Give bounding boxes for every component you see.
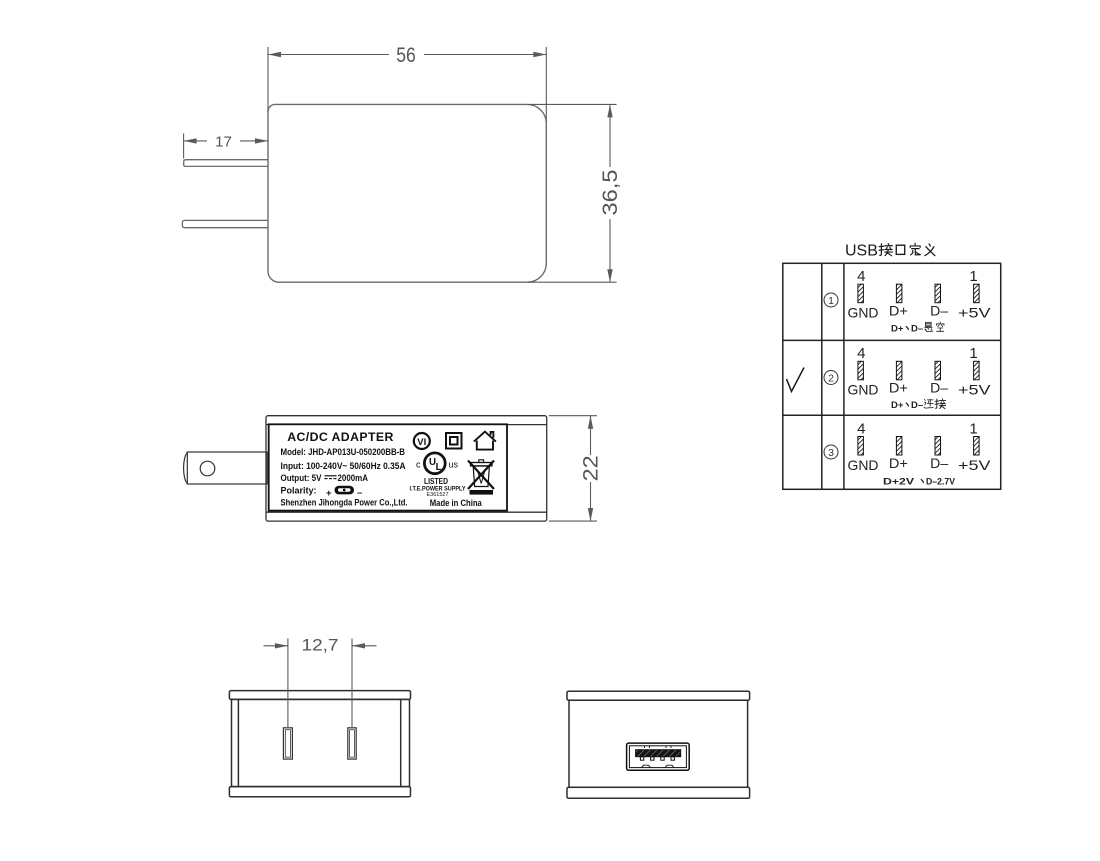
svg-text:Polarity:: Polarity:	[281, 486, 317, 496]
svg-text:D+2V: D+2V	[883, 477, 915, 488]
svg-text:1: 1	[969, 268, 977, 285]
svg-text:Shenzhen Jihongda Power Co.,Lt: Shenzhen Jihongda Power Co.,Ltd.	[281, 498, 408, 508]
svg-text:D–: D–	[930, 303, 948, 319]
svg-text:Made in China: Made in China	[430, 498, 483, 509]
svg-text:17: 17	[215, 134, 232, 151]
svg-text:D–2.7V: D–2.7V	[926, 477, 956, 488]
svg-text:56: 56	[396, 44, 416, 67]
svg-text:D–: D–	[911, 400, 923, 411]
svg-text:1: 1	[828, 295, 834, 307]
svg-text:D+: D+	[889, 303, 908, 319]
svg-text:VI: VI	[417, 437, 426, 448]
svg-text:22: 22	[580, 455, 603, 481]
svg-text:Input: 100-240V~ 50/60Hz 0.3: Input: 100-240V~ 50/60Hz 0.35A	[281, 461, 406, 471]
svg-text:D–: D–	[911, 324, 923, 335]
svg-text:c: c	[416, 460, 421, 470]
svg-text:+5V: +5V	[958, 305, 991, 321]
svg-text:AC/DC ADAPTER: AC/DC ADAPTER	[287, 430, 394, 444]
svg-text:4: 4	[857, 268, 865, 285]
svg-text:L: L	[436, 462, 442, 473]
svg-text:2: 2	[828, 372, 834, 384]
svg-text:12,7: 12,7	[302, 636, 339, 655]
svg-text:D+: D+	[891, 400, 904, 411]
svg-text:3: 3	[828, 447, 834, 459]
svg-text:D+: D+	[891, 324, 904, 335]
svg-text:Output: 5V: Output: 5V	[281, 473, 322, 483]
svg-text:USB: USB	[845, 243, 878, 260]
svg-text:Model: JHD-AP013U-050200BB-B: Model: JHD-AP013U-050200BB-B	[281, 447, 406, 457]
svg-text:LISTED: LISTED	[424, 477, 448, 486]
svg-text:us: us	[449, 460, 459, 470]
svg-text:GND: GND	[848, 305, 879, 321]
svg-text:36,5: 36,5	[599, 170, 622, 216]
svg-text:2000mA: 2000mA	[338, 473, 369, 483]
